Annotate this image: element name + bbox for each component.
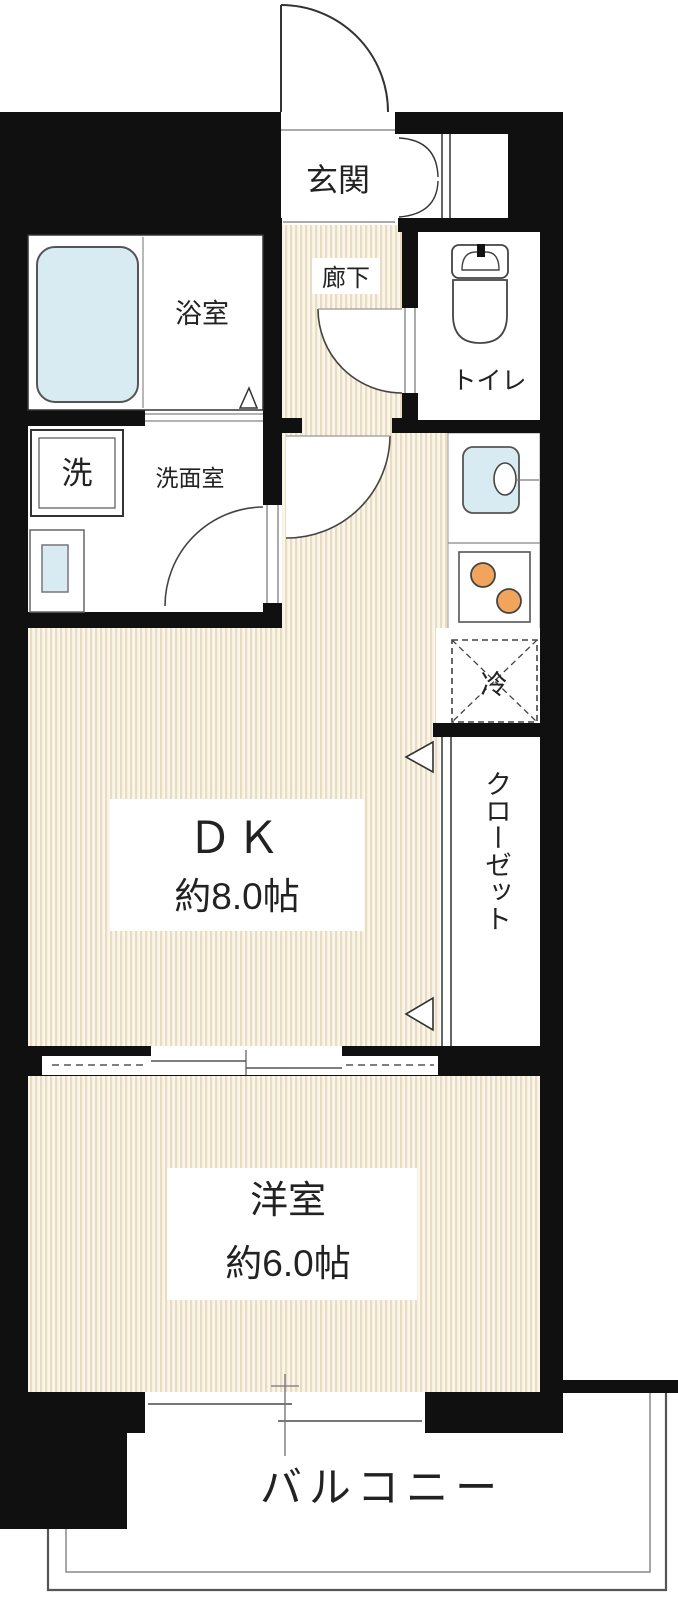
wall-bath-washroom <box>0 410 145 426</box>
floorplan-svg: 玄関 廊下 トイレ 浴室 洗 洗面室 ＤＫ 約8.0帖 冷 洋室 約6.0帖 バ… <box>0 0 678 1600</box>
washroom-label: 洗面室 <box>156 465 225 491</box>
wall-toilet-left-a <box>402 225 418 308</box>
wall-corridor-left-a <box>263 218 282 505</box>
entrance-label: 玄関 <box>306 162 370 198</box>
floorplan-page: 玄関 廊下 トイレ 浴室 洗 洗面室 ＤＫ 約8.0帖 冷 洋室 約6.0帖 バ… <box>0 0 678 1600</box>
washer-label: 洗 <box>62 456 93 491</box>
wall-left-upper <box>0 235 28 1046</box>
wall-window-right <box>425 1392 563 1433</box>
wall-closet-top <box>433 723 540 737</box>
wall-washroom-bottom <box>0 612 282 628</box>
wall-toilet-left-b <box>402 393 418 420</box>
wall-toilet-top <box>398 218 563 232</box>
balcony-label: バルコニー <box>260 1464 504 1511</box>
bathroom-label: 浴室 <box>175 299 229 329</box>
toilet-icon <box>452 244 508 343</box>
corridor-label: 廊下 <box>322 265 370 292</box>
dk-size-label: 約8.0帖 <box>174 876 299 917</box>
washroom-door-gap <box>263 505 282 603</box>
wall-top-left-mass <box>0 112 281 235</box>
wall-left-lower <box>0 1046 28 1392</box>
closet-label: クローゼット <box>481 770 511 932</box>
wall-balcony-block <box>0 1392 127 1529</box>
western-room-size-label: 約6.0帖 <box>225 1243 350 1284</box>
dk-label: ＤＫ <box>188 814 284 863</box>
vanity-sink-icon <box>42 545 68 592</box>
wall-toilet-bottom <box>392 418 563 433</box>
western-room-label: 洋室 <box>250 1180 326 1222</box>
toilet-label: トイレ <box>451 367 526 395</box>
wall-dk-door-stub <box>282 418 302 433</box>
stove-icon <box>459 552 530 622</box>
refrigerator-label: 冷 <box>481 670 508 700</box>
wall-right-stub <box>563 1380 678 1393</box>
wall-right <box>540 134 563 1433</box>
bathtub-icon <box>37 247 138 402</box>
faucet-icon <box>494 463 516 495</box>
